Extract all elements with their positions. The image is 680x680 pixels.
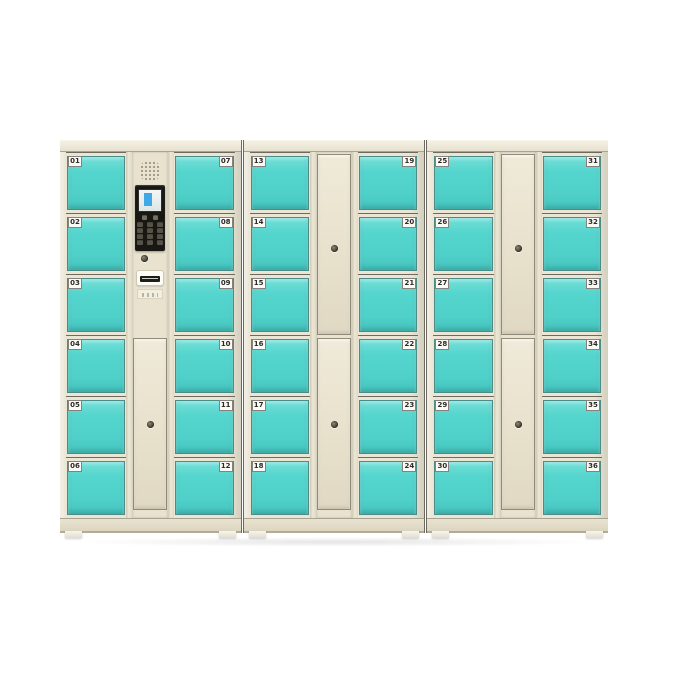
door-number-label: 04 [68,339,82,350]
product-photo-smart-locker: 0102030405060708091011121314151617181920… [0,0,680,680]
slot-line [142,278,158,279]
locker-door-row: 21 [358,274,418,335]
door-number-label: 35 [586,400,600,411]
door-column-right: 313233343536 [542,152,602,518]
cabinet-columns: 131415161718192021222324 [244,152,425,518]
locker-door-row: 16 [250,335,310,396]
cabinet-top-rail [427,140,608,152]
door-number-label: 28 [435,339,449,350]
keypad-key [147,229,153,233]
locker-door-row: 29 [433,396,493,457]
locker-door-row: 35 [542,396,602,457]
door-column-right: 070809101112 [174,152,234,518]
locker-door-row: 18 [250,457,310,518]
function-keys [135,216,165,220]
function-key [153,216,158,220]
door-number-label: 15 [252,278,266,289]
door-number-label: 30 [435,461,449,472]
locker-door-row: 33 [542,274,602,335]
speaker-grille-icon [139,160,161,182]
door-number-label: 08 [219,217,233,228]
service-door-column [316,152,352,518]
locker-door-row: 14 [250,213,310,274]
door-column-left: 010203040506 [66,152,126,518]
display-screen [138,189,162,212]
locker-cabinets: 0102030405060708091011121314151617181920… [60,140,608,533]
cabinet-base [244,518,425,533]
locker-door-row: 09 [174,274,234,335]
cabinet-columns: 010203040506070809101112 [60,152,241,518]
door-number-label: 19 [402,156,416,167]
door-column-right: 192021222324 [358,152,418,518]
cabinet-1: 010203040506070809101112 [60,140,242,533]
door-number-label: 24 [402,461,416,472]
keyhole-icon [331,421,338,428]
slot-opening [140,276,160,282]
cabinet-top-rail [244,140,425,152]
door-number-label: 07 [219,156,233,167]
keyhole-icon [147,421,154,428]
locker-door-row: 36 [542,457,602,518]
function-key [142,216,147,220]
service-door [501,338,535,510]
door-number-label: 32 [586,217,600,228]
door-number-label: 17 [252,400,266,411]
door-number-label: 09 [219,278,233,289]
keypad-key [157,223,163,227]
control-panel [135,185,165,251]
locker-door-row: 08 [174,213,234,274]
door-number-label: 01 [68,156,82,167]
door-number-label: 29 [435,400,449,411]
door-number-label: 03 [68,278,82,289]
service-door [317,338,351,510]
keyhole-icon [141,255,148,262]
locker-door-row: 07 [174,152,234,213]
keypad-key [157,235,163,239]
keypad-key [157,241,163,245]
door-number-label: 11 [219,400,233,411]
locker-door-row: 17 [250,396,310,457]
door-number-label: 02 [68,217,82,228]
cabinet-2: 131415161718192021222324 [243,140,426,533]
keypad-key [137,229,143,233]
locker-door-row: 05 [66,396,126,457]
keypad-key [147,223,153,227]
locker-door-row: 10 [174,335,234,396]
cabinet-top-rail [60,140,241,152]
door-number-label: 36 [586,461,600,472]
keyhole-icon [331,245,338,252]
door-number-label: 10 [219,339,233,350]
locker-door-row: 25 [433,152,493,213]
locker-door-row: 06 [66,457,126,518]
locker-door-row: 03 [66,274,126,335]
keypad-key [147,241,153,245]
control-column [132,152,168,518]
service-door [317,154,351,335]
door-column-left: 131415161718 [250,152,310,518]
cabinet-base [60,518,241,533]
door-number-label: 27 [435,278,449,289]
door-number-label: 26 [435,217,449,228]
keypad-key [157,229,163,233]
locker-door-row: 15 [250,274,310,335]
locker-door-row: 24 [358,457,418,518]
locker-door-row: 31 [542,152,602,213]
locker-door-row: 28 [433,335,493,396]
keypad-key [147,235,153,239]
cabinet-base [427,518,608,533]
door-number-label: 18 [252,461,266,472]
door-number-label: 25 [435,156,449,167]
locker-door-row: 23 [358,396,418,457]
locker-door-row: 12 [174,457,234,518]
service-door [501,154,535,335]
door-number-label: 13 [252,156,266,167]
service-door [133,338,167,510]
door-number-label: 31 [586,156,600,167]
cabinet-3: 252627282930313233343536 [426,140,608,533]
locker-door-row: 30 [433,457,493,518]
floor-shadow [70,537,600,547]
locker-door-row: 27 [433,274,493,335]
door-number-label: 34 [586,339,600,350]
door-number-label: 05 [68,400,82,411]
door-number-label: 21 [402,278,416,289]
locker-door-row: 13 [250,152,310,213]
keypad-key [137,241,143,245]
keyhole-icon [515,245,522,252]
door-column-left: 252627282930 [433,152,493,518]
door-number-label: 33 [586,278,600,289]
door-number-label: 12 [219,461,233,472]
locker-door-row: 26 [433,213,493,274]
door-number-label: 23 [402,400,416,411]
screen-content [144,193,152,206]
locker-door-row: 20 [358,213,418,274]
door-number-label: 20 [402,217,416,228]
door-number-label: 14 [252,217,266,228]
cabinet-columns: 252627282930313233343536 [427,152,608,518]
info-sticker [137,289,163,299]
numeric-keypad [135,223,165,245]
door-number-label: 06 [68,461,82,472]
keyhole-icon [515,421,522,428]
locker-door-row: 01 [66,152,126,213]
door-number-label: 16 [252,339,266,350]
locker-door-row: 11 [174,396,234,457]
locker-door-row: 34 [542,335,602,396]
keypad-key [137,223,143,227]
receipt-slot [136,270,164,286]
service-door-column [500,152,536,518]
door-number-label: 22 [402,339,416,350]
locker-door-row: 19 [358,152,418,213]
locker-door-row: 02 [66,213,126,274]
locker-door-row: 32 [542,213,602,274]
locker-door-row: 22 [358,335,418,396]
locker-door-row: 04 [66,335,126,396]
keypad-key [137,235,143,239]
